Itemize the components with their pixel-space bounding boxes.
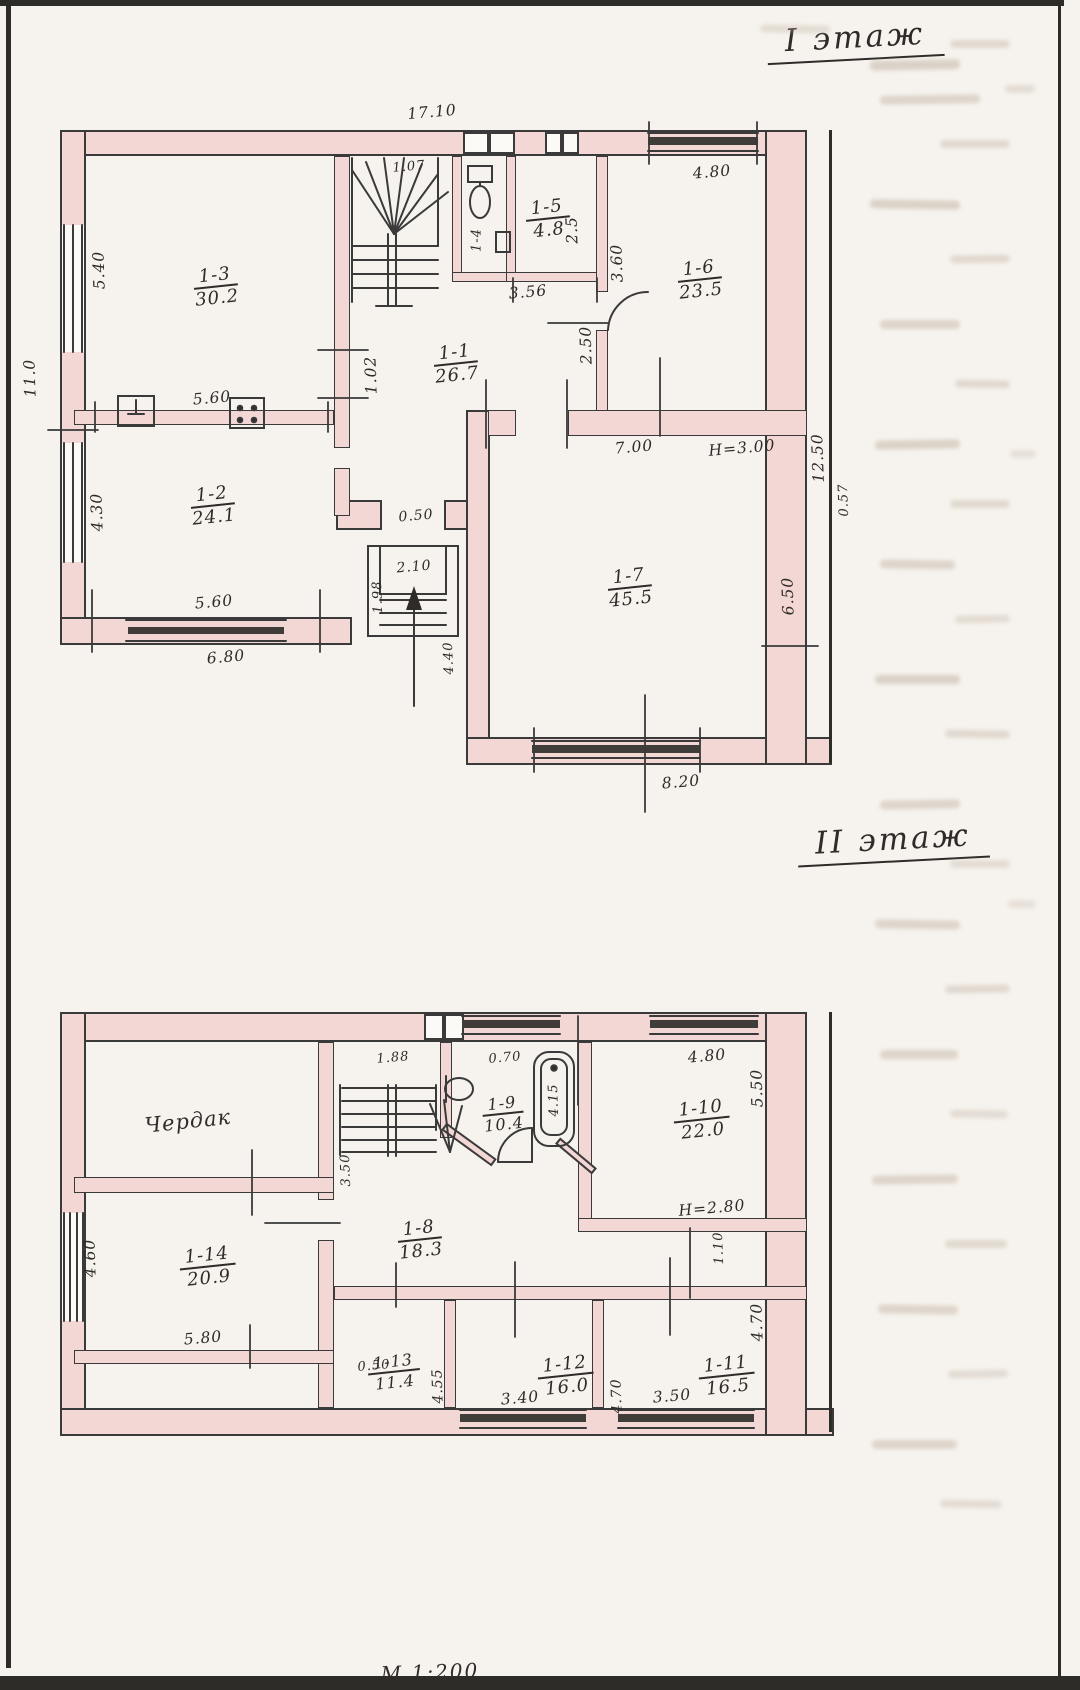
frame-left: [6, 0, 11, 1668]
dim-f1-top-width: 17.10: [407, 101, 458, 123]
bleed-through-smudge: [870, 59, 960, 71]
dim-f2-r10-top: 4.80: [687, 1045, 727, 1066]
bleed-through-smudge: [945, 729, 1010, 738]
f2-wall-r10-bottom: [578, 1218, 807, 1232]
bleed-through-smudge: [945, 984, 1010, 993]
dim-f2-r11-bottom: 3.50: [652, 1385, 692, 1406]
room-label-1-7: 1-745.5: [606, 564, 654, 611]
dim-f1-porch-step: 0.50: [398, 506, 434, 525]
dim-f1-r6-top: 4.80: [692, 161, 732, 182]
f1-wall-bath-r5: [506, 156, 516, 282]
bleed-through-smudge: [878, 1304, 958, 1314]
f1-right-offset-line: [829, 130, 832, 763]
frame-bottom: [0, 1676, 1080, 1690]
scale-note: М 1:200: [380, 1658, 479, 1685]
f1-stairs-icon: [352, 158, 448, 306]
room-label-1-10: 1-1022.0: [672, 1096, 733, 1145]
f2-wall-bottom: [60, 1408, 834, 1436]
dim-f1-stair-width: 1.07: [392, 158, 426, 176]
dim-f1-entry-width: 4.40: [441, 641, 457, 674]
room-label-1-11: 1-1116.5: [697, 1352, 758, 1401]
f2-wall-bath-r10: [578, 1042, 592, 1230]
dim-f1-outer-bottom-left: 6.80: [206, 646, 246, 667]
bleed-through-smudge: [950, 40, 1010, 48]
bleed-through-smudge: [955, 615, 1010, 624]
f2-wall-hall-left-lower: [318, 1240, 334, 1408]
room-label-1-8: 1-818.3: [396, 1216, 444, 1263]
f2-chimney-1: [424, 1014, 444, 1040]
f1-chimney-a1: [463, 132, 489, 154]
dim-f1-r3-left: 5.40: [89, 250, 108, 289]
dim-f1-left-height: 11.0: [20, 358, 39, 397]
dim-f1-r6-left-upper: 3.60: [607, 243, 626, 282]
bleed-through-smudge: [880, 799, 960, 809]
bleed-through-smudge: [870, 199, 960, 210]
dim-f2-r14-bottom: 5.80: [183, 1327, 223, 1348]
dim-f1-right-total: 12.50: [808, 433, 828, 483]
bleed-through-smudge: [955, 380, 1010, 389]
bleed-through-smudge: [875, 439, 960, 449]
bleed-through-smudge: [872, 1440, 957, 1449]
dim-f1-r2-left: 4.30: [87, 492, 106, 531]
bleed-through-smudge: [875, 675, 960, 684]
dim-f1-r2-bottom: 5.60: [194, 591, 234, 612]
f1-chimney-b1: [545, 132, 562, 154]
bleed-through-smudge: [1010, 450, 1036, 458]
dim-f2-stair-side: 3.50: [338, 1153, 354, 1186]
dim-f2-bath-top: 0.70: [488, 1049, 522, 1067]
dim-f1-bath-bottom: 3.56: [508, 281, 548, 302]
room-label-attic: Чердак: [138, 1105, 238, 1139]
f1-wall-r7-top-b: [568, 410, 807, 436]
room-label-1-12: 1-1216.0: [536, 1352, 597, 1401]
bleed-through-smudge: [880, 1050, 958, 1059]
dim-f1-hall-left: 1.02: [361, 355, 380, 394]
f1-wall-hall-left-lower: [334, 468, 350, 516]
dim-f1-r7-bottom: 8.20: [661, 771, 701, 792]
f2-chimney-2: [444, 1014, 464, 1040]
room-label-1-14: 1-1420.9: [178, 1243, 239, 1292]
dim-f1-r7-right: 6.50: [778, 576, 797, 615]
f1-wall-bath-left: [452, 156, 462, 282]
bleed-through-smudge: [872, 1174, 958, 1184]
bleed-through-smudge: [945, 1240, 1007, 1248]
bleed-through-smudge: [950, 254, 1010, 263]
bleed-through-smudge: [1005, 85, 1035, 94]
f1-wall-r6-left-upper: [596, 156, 608, 292]
f1-wall-divider-r3-r2: [74, 410, 334, 425]
dim-f2-r12-bottom: 3.40: [500, 1387, 540, 1408]
dim-f2-r14-left: 4.60: [80, 1238, 99, 1277]
f1-wall-r6-left-lower: [596, 330, 608, 414]
dim-f1-r5-side: 2.5: [563, 216, 582, 244]
f2-wall-attic-bottom: [74, 1177, 334, 1193]
f1-wall-left: [60, 130, 86, 645]
dim-f2-r12-right: 4.70: [608, 1378, 625, 1414]
bleed-through-smudge: [940, 140, 1010, 148]
scanned-floor-plan-page: I этаж II этаж: [0, 0, 1080, 1690]
dim-f1-r3-bottom: 5.60: [192, 387, 232, 408]
bleed-through-smudge: [1008, 900, 1036, 908]
f1-wall-r7-top-a: [488, 410, 516, 436]
room-label-1-4: 1-4: [470, 222, 485, 258]
dim-f1-porch-width: 2.10: [396, 557, 432, 576]
dim-f2-corridor: 1.10: [711, 1231, 727, 1264]
bleed-through-smudge: [950, 500, 1010, 508]
floor1-title: I этаж: [766, 15, 944, 65]
room-label-1-9: 1-910.4: [481, 1093, 526, 1136]
f2-wall-r14-bottom: [74, 1350, 334, 1364]
f1-wall-r5-bottom: [506, 272, 606, 282]
f1-door-arc: [608, 292, 648, 330]
dim-f2-bottom-step: 0.50: [357, 1357, 391, 1375]
dim-f1-right-offset: 0.57: [836, 483, 852, 516]
frame-right: [1058, 4, 1061, 1676]
dim-f1-r7-top: 7.00: [614, 436, 654, 457]
dim-f2-r13-right: 4.55: [429, 1368, 446, 1404]
f1-toilet-icon: [468, 166, 492, 218]
f1-chimney-a2: [489, 132, 515, 154]
dim-f2-r10-right: 5.50: [747, 1068, 766, 1107]
f2-wall-bottomrooms-top: [334, 1286, 807, 1300]
dim-f2-stair-top: 1.88: [376, 1049, 410, 1067]
bleed-through-smudge: [875, 919, 960, 929]
f1-wall-top: [60, 130, 807, 156]
f1-entry-arrow-icon: [406, 586, 422, 706]
room-label-1-3: 1-330.2: [192, 263, 240, 310]
dim-f2-r11-right: 4.70: [747, 1302, 766, 1341]
dim-f1-r6-left-lower: 2.50: [576, 325, 595, 364]
f2-right-offset-line: [829, 1012, 832, 1432]
f1-chimney-b2: [562, 132, 579, 154]
bleed-through-smudge: [880, 94, 980, 105]
dim-f2-tub-length: 4.15: [546, 1083, 562, 1116]
bleed-through-smudge: [950, 860, 1010, 868]
f1-wall-r7-left: [466, 410, 490, 765]
f2-wall-left: [60, 1012, 86, 1436]
f1-wall-hall-left-upper: [334, 156, 350, 448]
bleed-through-smudge: [950, 1109, 1008, 1118]
bleed-through-smudge: [948, 1369, 1008, 1378]
bleed-through-smudge: [880, 559, 955, 569]
f1-wall-bath-bottom: [452, 272, 514, 282]
bleed-through-smudge: [760, 24, 830, 33]
dim-f2-r10-ceiling: H=2.80: [678, 1196, 746, 1220]
frame-top: [0, 0, 1064, 6]
f1-dimension-ticks: [48, 122, 818, 812]
bleed-through-smudge: [940, 1499, 1002, 1508]
room-label-1-2: 1-224.1: [189, 482, 237, 529]
room-label-1-6: 1-623.5: [676, 256, 724, 303]
dim-f1-porch-depth: 1.98: [370, 580, 386, 613]
room-label-1-1: 1-126.7: [432, 340, 480, 387]
f1-windows: [62, 133, 758, 758]
bleed-through-smudge: [880, 320, 960, 329]
f1-wall-bottom-left: [60, 617, 352, 645]
